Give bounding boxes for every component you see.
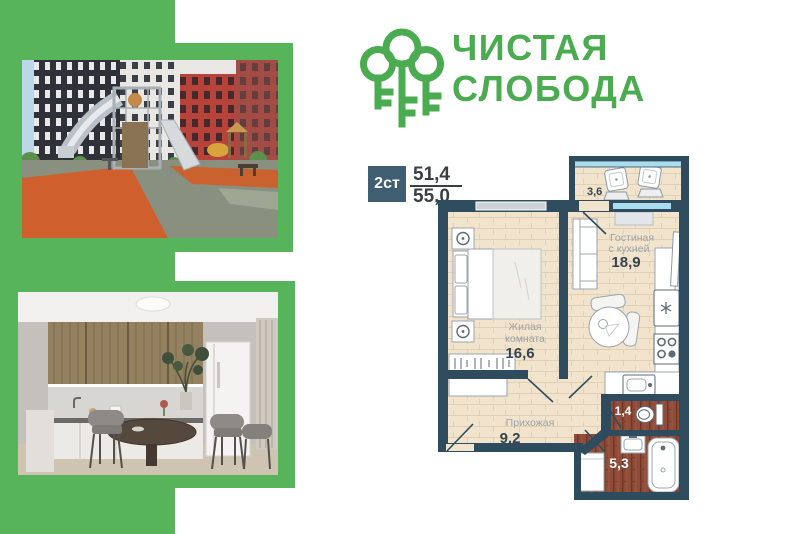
bedroom-name-line2: комната bbox=[505, 333, 545, 345]
hallway-name: Прихожая bbox=[506, 417, 555, 429]
bathroom-area-label: 5,3 bbox=[609, 455, 629, 471]
wc-area-label: 1,4 bbox=[615, 404, 632, 418]
floorplan: 3,6 Гостиная с кухней 18,9 Жилая комната… bbox=[433, 152, 703, 502]
fridge bbox=[206, 342, 250, 456]
kitchen-sink-icon bbox=[623, 375, 655, 395]
bedroom-area-label: 16,6 bbox=[505, 345, 534, 362]
window-sill bbox=[615, 212, 653, 225]
backsplash bbox=[48, 387, 203, 419]
bed-icon bbox=[453, 249, 541, 319]
brand-title: ЧИСТАЯ СЛОБОДА bbox=[452, 27, 646, 109]
living-room-area-label: 18,9 bbox=[611, 254, 640, 271]
bath-sink-icon bbox=[621, 435, 645, 453]
bathtub-icon bbox=[648, 438, 679, 492]
sofa-icon bbox=[573, 219, 597, 289]
hall-cabinet-icon bbox=[449, 377, 507, 396]
bedroom-name-line1: Жилая bbox=[508, 321, 541, 333]
plan-type-badge: 2ст bbox=[368, 166, 406, 202]
brand-title-line2: СЛОБОДА bbox=[452, 68, 646, 109]
hallway-area-label: 9,2 bbox=[500, 430, 521, 447]
courtyard-playground-photo bbox=[22, 60, 278, 238]
stove-icon bbox=[654, 334, 679, 364]
brand-title-line1: ЧИСТАЯ bbox=[452, 27, 646, 68]
ceiling-light bbox=[136, 297, 170, 311]
balcony-area-label: 3,6 bbox=[587, 186, 602, 198]
fridge-icon bbox=[654, 290, 679, 326]
kitchen-interior-photo bbox=[18, 292, 278, 475]
three-keys-trees-icon bbox=[356, 24, 448, 128]
playground-ground bbox=[22, 160, 278, 238]
flyer-page: ЧИСТАЯ СЛОБОДА 2ст 51,4 55,0 bbox=[0, 0, 800, 534]
